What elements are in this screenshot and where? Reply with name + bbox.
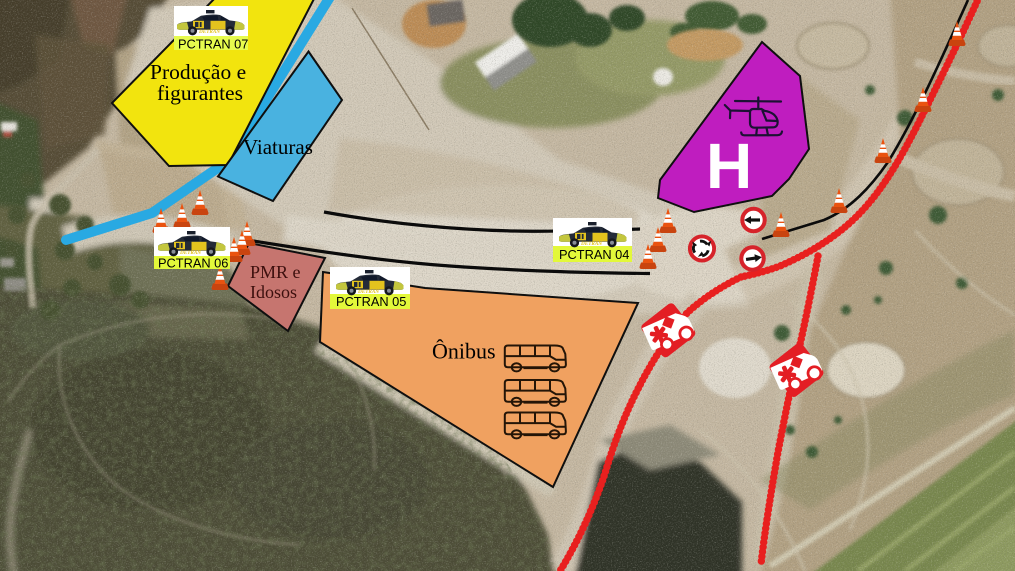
svg-text:Idosos: Idosos [250, 282, 297, 302]
svg-text:Ônibus: Ônibus [432, 339, 496, 364]
svg-text:figurantes: figurantes [157, 81, 243, 105]
svg-text:PCTRAN 06: PCTRAN 06 [158, 256, 228, 271]
svg-text:PCTRAN 07: PCTRAN 07 [178, 37, 248, 52]
svg-text:PCTRAN 05: PCTRAN 05 [336, 294, 406, 309]
svg-text:PCTRAN 04: PCTRAN 04 [559, 247, 629, 262]
svg-text:H: H [706, 130, 752, 202]
svg-text:PMR e: PMR e [250, 262, 301, 282]
svg-text:Viaturas: Viaturas [243, 135, 313, 159]
